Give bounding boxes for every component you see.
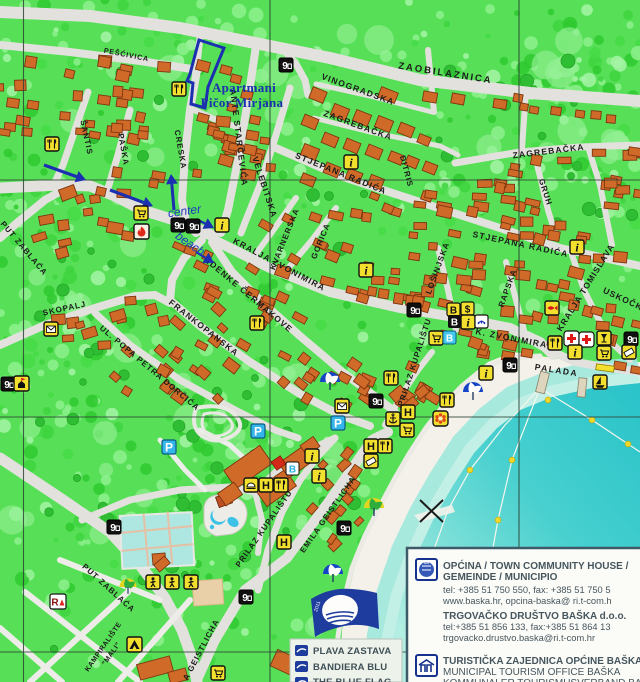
svg-text:tel: +385 51 750 550, fax: +38: tel: +385 51 750 550, fax: +385 51 750 5 xyxy=(443,585,611,595)
svg-text:GEMEINDE / MUNICIPIO: GEMEINDE / MUNICIPIO xyxy=(443,572,558,583)
svg-text:www.baska.hr, opcina-baska@ r: www.baska.hr, opcina-baska@ ri.t-com.h xyxy=(442,596,612,606)
svg-text:trgovacko.drustvo.baska@ri.t-c: trgovacko.drustvo.baska@ri.t-com.hr xyxy=(443,633,595,643)
svg-text:Fičor Mirjana: Fičor Mirjana xyxy=(201,95,284,110)
svg-text:MUNICIPAL TOURISM OFFICE BAŠKA: MUNICIPAL TOURISM OFFICE BAŠKA xyxy=(443,665,621,678)
svg-text:BANDIERA BLU: BANDIERA BLU xyxy=(313,662,387,673)
svg-text:Apartmani: Apartmani xyxy=(212,80,276,95)
svg-text:TURISTIČKA ZAJEDNICA OPĆINE BA: TURISTIČKA ZAJEDNICA OPĆINE BAŠKA xyxy=(443,654,640,667)
svg-text:OPĆINA / TOWN COMMUNITY HOUSE: OPĆINA / TOWN COMMUNITY HOUSE / xyxy=(443,559,629,572)
svg-text:tel:+385 51 856 133, fax:+385: tel:+385 51 856 133, fax:+385 51 864 13 xyxy=(443,622,611,632)
svg-text:TRGOVAČKO DRUŠTVO BAŠKA d.o.o.: TRGOVAČKO DRUŠTVO BAŠKA d.o.o. xyxy=(443,609,627,622)
svg-text:PLAVA ZASTAVA: PLAVA ZASTAVA xyxy=(313,646,391,657)
svg-text:THE BLUE FLAG: THE BLUE FLAG xyxy=(313,677,392,682)
